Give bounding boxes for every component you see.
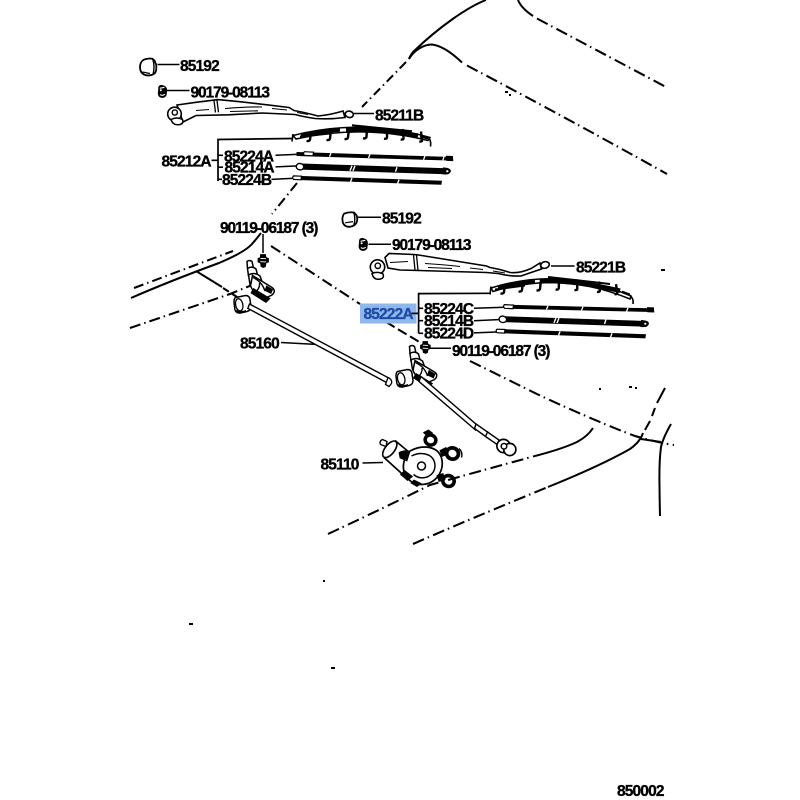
- svg-text:85110: 85110: [321, 457, 359, 474]
- svg-text:90119-06187 (3): 90119-06187 (3): [220, 220, 318, 237]
- svg-text:850002: 850002: [617, 783, 664, 800]
- svg-text:85192: 85192: [382, 211, 421, 228]
- svg-text:85211B: 85211B: [375, 108, 424, 125]
- svg-text:85212A: 85212A: [162, 154, 212, 171]
- svg-text:90179-08113: 90179-08113: [392, 237, 472, 254]
- svg-text:90179-08113: 90179-08113: [191, 85, 271, 102]
- svg-text:85224B: 85224B: [222, 172, 272, 189]
- svg-text:85222A: 85222A: [364, 306, 414, 323]
- svg-text:85224D: 85224D: [424, 325, 474, 342]
- svg-text:85192: 85192: [180, 58, 219, 75]
- svg-text:85221B: 85221B: [576, 259, 626, 276]
- svg-text:85160: 85160: [240, 336, 279, 353]
- svg-text:90119-06187 (3): 90119-06187 (3): [452, 343, 550, 360]
